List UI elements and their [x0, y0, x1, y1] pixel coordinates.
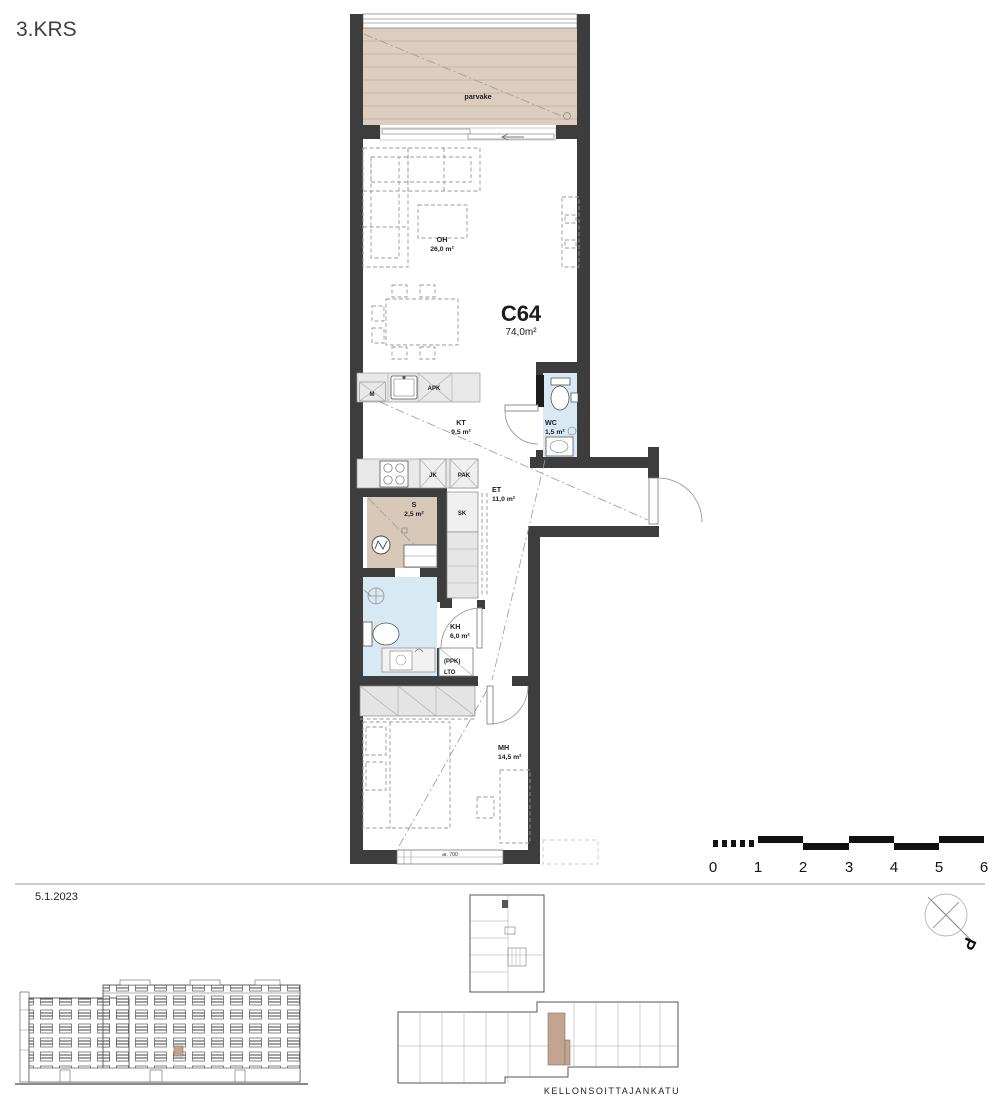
kitchen: M APK JK PAK KT — [357, 373, 480, 488]
sauna-label: S — [412, 500, 417, 509]
scale-tick-2: 2 — [799, 859, 807, 876]
bedroom: MH 14,5 m² ar. 700 — [360, 686, 598, 864]
wc-area: 1,5 m² — [545, 429, 565, 436]
date-label: 5.1.2023 — [35, 891, 78, 903]
coffee-table — [418, 205, 467, 238]
ppk-lto-unit: (PPK) LTO — [439, 648, 473, 676]
kitchen-label: KT — [456, 418, 466, 427]
dining-set — [372, 285, 458, 359]
scale-tick-1: 1 — [754, 859, 762, 876]
entry-door — [649, 478, 702, 524]
balcony: parvake — [363, 14, 577, 125]
apartment-highlight-elevation — [174, 1046, 183, 1056]
stove-icon — [380, 461, 408, 487]
bed — [363, 722, 450, 828]
bedroom-area: 14,5 m² — [498, 754, 522, 761]
scale-tick-6: 6 — [980, 859, 988, 876]
balcony-label: parvake — [464, 92, 491, 101]
living-room: OH 26,0 m² C64 74,0m² — [363, 148, 579, 359]
north-label: P — [958, 935, 980, 953]
scale-bar-segments — [713, 836, 984, 850]
washer-icon — [382, 648, 435, 672]
bathroom-label: KH — [450, 622, 460, 631]
bathroom-area: 6,0 m² — [450, 633, 470, 640]
elevation-main-block — [103, 985, 300, 1082]
wardrobe — [360, 686, 475, 719]
apartment-id: C64 — [501, 301, 542, 326]
sink-icon — [391, 376, 417, 399]
sauna-bench — [404, 545, 437, 567]
window-sill-note: ar. 700 — [442, 852, 458, 858]
walls — [350, 14, 659, 864]
freezer-label: PAK — [458, 473, 471, 479]
scale-bar: 0 1 2 3 4 5 6 — [709, 836, 988, 876]
wc-label: WC — [545, 418, 557, 427]
scale-tick-0: 0 — [709, 859, 717, 876]
hall-area: 11,0 m² — [492, 496, 516, 503]
living-area: 26,0 m² — [430, 246, 454, 253]
balcony-sliding-door — [380, 128, 556, 140]
heat-recovery-label: LTO — [444, 670, 456, 676]
dining-table — [386, 299, 458, 345]
bedroom-window: ar. 700 — [397, 850, 503, 864]
fridge-label: JK — [429, 473, 437, 479]
north-arrow: P — [925, 894, 980, 953]
floor-key-plan — [470, 895, 544, 992]
sauna-stove-icon — [372, 536, 390, 554]
kitchen-lower-row: JK PAK — [357, 459, 478, 488]
washer-label: (PPK) — [444, 659, 460, 665]
elevation-key — [15, 980, 308, 1084]
chair — [477, 797, 494, 818]
microwave-label: M — [370, 392, 375, 398]
apartment-highlight-site — [548, 1013, 565, 1065]
bath-toilet-icon — [363, 622, 399, 646]
bathroom-door — [441, 608, 482, 648]
dishwasher-label: APK — [428, 386, 441, 392]
scale-tick-4: 4 — [890, 859, 898, 876]
duct-shaft — [536, 375, 544, 407]
kitchen-counter: M APK — [357, 373, 480, 402]
scale-tick-5: 5 — [935, 859, 943, 876]
scale-tick-3: 3 — [845, 859, 853, 876]
site-key-plan: KELLONSOITTAJANKATU — [398, 1002, 680, 1096]
sofa — [363, 148, 480, 267]
desk — [500, 770, 530, 843]
balcony-railing — [363, 14, 577, 28]
sauna-area: 2,5 m² — [404, 511, 424, 518]
apartment-area: 74,0m² — [505, 327, 537, 338]
bedroom-label: MH — [498, 743, 509, 752]
living-label: OH — [437, 235, 448, 244]
floor-plan-drawing: 3.KRS parvake — [0, 0, 1000, 1100]
hall-closet-sk: SK — [447, 492, 478, 532]
bedroom-door — [487, 686, 528, 724]
wc-door — [505, 405, 538, 444]
neighbor-balcony-outline — [543, 840, 598, 864]
hall-label: ET — [492, 485, 502, 494]
street-label: KELLONSOITTAJANKATU — [544, 1086, 680, 1096]
wc-room: WC 1,5 m² — [505, 373, 578, 457]
page-title: 3.KRS — [16, 18, 77, 41]
floorplan-page: 3.KRS parvake — [0, 0, 1000, 1100]
closet-label: SK — [458, 511, 467, 517]
tv-bench — [562, 197, 579, 267]
